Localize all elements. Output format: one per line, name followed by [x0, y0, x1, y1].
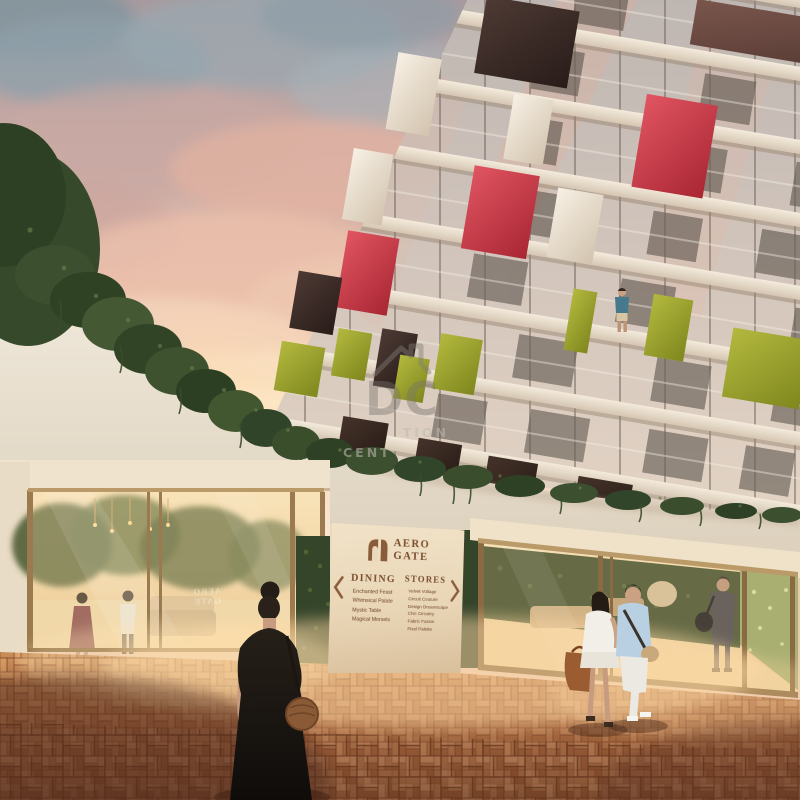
directory: DINING Enchanted Feast Whimsical Palate … [329, 572, 463, 635]
directory-sign: AERO GATE DINING Enchanted Feast Whimsic… [330, 523, 471, 673]
stores-list: Velvet Voltage Circuit Couture Design Dr… [401, 588, 449, 634]
stores-heading: STORES [402, 575, 449, 586]
architectural-rendering: DC TION CENT AERO GATE AERO GATE DINING [0, 0, 800, 800]
brand-logo: AERO GATE [331, 534, 464, 565]
rattan-bag [286, 698, 318, 730]
dining-heading: DINING [346, 573, 400, 586]
olive-fin [722, 327, 800, 409]
dining-column: DINING Enchanted Feast Whimsical Palate … [345, 573, 401, 634]
red-fin [631, 94, 718, 199]
dining-list: Enchanted Feast Whimsical Palate Mystic … [345, 588, 400, 626]
dining-item: Magical Morsels [352, 616, 400, 626]
red-fin [461, 165, 540, 259]
stores-column: STORES Velvet Voltage Circuit Couture De… [401, 575, 449, 635]
brand-wordmark: AERO GATE [393, 538, 430, 563]
aero-gate-arch-icon [367, 536, 389, 562]
chevron-right-icon [450, 579, 461, 602]
store-item: Pixel Palette [407, 626, 447, 634]
olive-fin [274, 341, 326, 398]
scene-canvas [0, 0, 800, 800]
maroon-fin [474, 0, 580, 89]
chevron-left-icon [333, 575, 344, 599]
